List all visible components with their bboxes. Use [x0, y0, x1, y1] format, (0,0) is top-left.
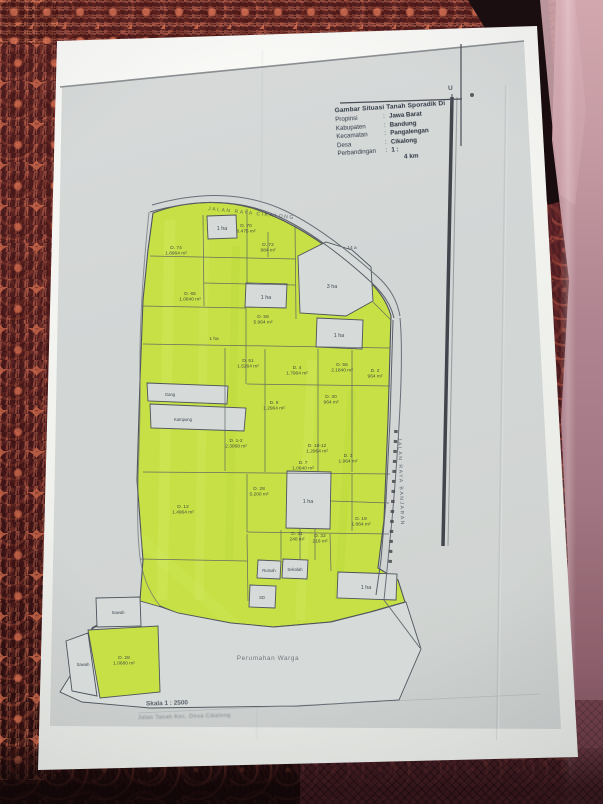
parcel-label: 1 ha	[261, 295, 272, 301]
parcel-label: Sekolah	[287, 567, 303, 572]
title-block: Gambar Situasi Tanah Sporadik Di Propins…	[334, 99, 467, 159]
white-parcel	[150, 404, 246, 431]
parcel-label: Kampung	[174, 417, 193, 422]
lot-label: D. 32216 m²	[313, 533, 328, 544]
lot-label: D. 10-121.2964 m²	[306, 443, 328, 454]
footer-note-1: Skala 1 : 2500	[146, 699, 188, 707]
north-mark: U	[448, 85, 453, 92]
cadastral-map: U JALAN RAYA CIKALONG JALAN RAYA BANJARA…	[0, 0, 603, 804]
lot-label: D. 72984 m²	[261, 242, 276, 253]
parcel-label: 1 ha	[303, 499, 314, 505]
parcel-label: 1 ha	[361, 585, 372, 591]
parcel-label: SD	[259, 595, 265, 600]
parcel-label: Sawah	[77, 662, 90, 667]
parcel-label: 1 ha	[334, 333, 345, 339]
drain-line	[443, 97, 457, 546]
lot-label: 1 ha	[209, 336, 219, 342]
right-road-label: JALAN RAYA BANJARAN	[396, 438, 405, 526]
parcel-label: Perumahan Warga	[237, 655, 299, 662]
white-parcel	[147, 383, 228, 404]
lot-label: D. 31240 m²	[290, 531, 305, 542]
parcel-label: Gang	[165, 392, 176, 397]
parcel-label: Rumah	[262, 568, 276, 573]
photocopy-edge-line	[60, 41, 524, 87]
parcel-label: 3 ha	[327, 284, 338, 290]
lot-label: 14 a	[347, 245, 357, 251]
scale-note: 4 km	[404, 153, 419, 161]
photo-of-land-map: U JALAN RAYA CIKALONG JALAN RAYA BANJARA…	[0, 0, 603, 804]
lot-label: D. 30964 m²	[324, 394, 339, 405]
parcel-label: 1 ha	[217, 226, 228, 232]
white-parcel	[298, 242, 373, 316]
parcel-label: Sawah	[112, 610, 125, 615]
